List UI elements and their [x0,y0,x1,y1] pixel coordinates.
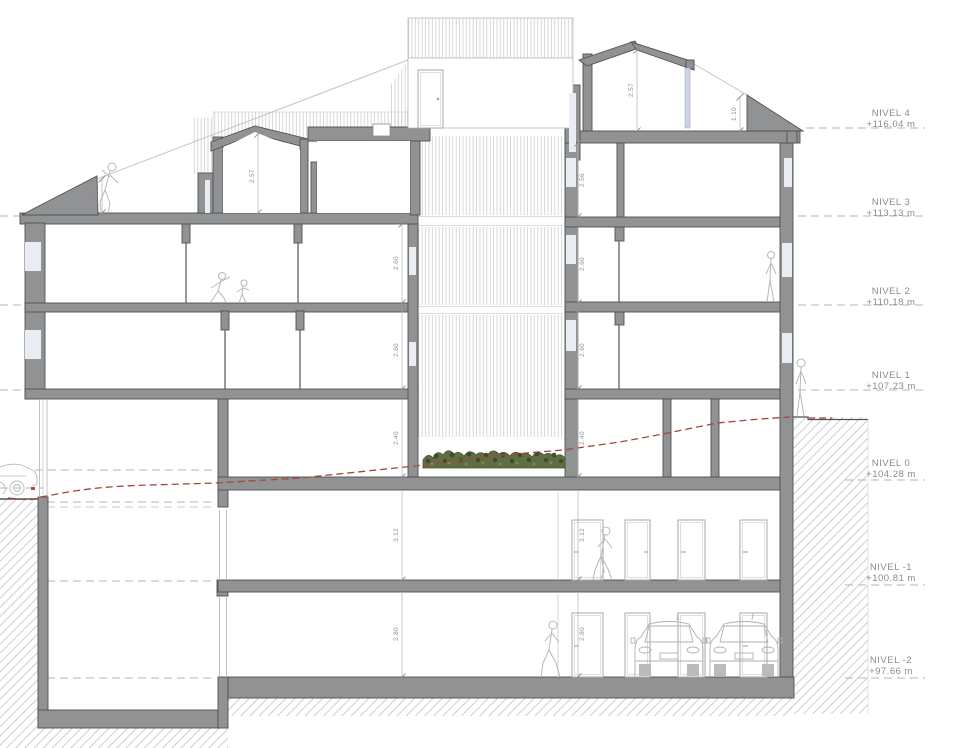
door-b1-2 [625,520,650,580]
left-basement-slab [38,710,218,728]
person-icon-outside [796,359,806,416]
level-elevation: +104.28 m [866,469,916,480]
level0-partition-1 [663,399,671,477]
left-basement-wall [38,497,48,728]
roof-room-glazing [685,68,690,128]
level-label-nivel2: NIVEL 2 +110.18 m [867,286,916,308]
attic-room1-interior [223,132,300,213]
level-name: NIVEL 2 [872,286,911,297]
partition-stub [296,311,304,330]
level-elevation: +100.81 m [866,573,916,584]
slab-nivel1-left [25,389,418,399]
slab-nivel1-right [565,389,792,399]
person-icon-level2 [766,252,776,303]
level-elevation: +116.04 m [867,119,916,130]
slab-nivel4 [565,131,800,143]
partition-stub [182,224,190,243]
partition-stub [294,224,302,243]
person-icon-terrace [100,163,118,213]
attic-room2-interior [317,141,410,213]
level-elevation: +113.13 m [867,208,916,219]
left-wall-window-l2 [25,330,41,359]
parapet-window-tower [569,93,576,152]
dimension-label: 2.57 [628,83,635,97]
car-light [31,487,35,490]
courtyard-wall-hatch-2 [418,227,563,305]
slab-nivel2-right [565,302,792,312]
opening-jamb-lines [40,399,559,677]
dimension-label: 3.12 [579,528,586,542]
ground-hatch-under-main-slab [228,698,792,716]
level-elevation: +110.18 m [867,297,916,308]
slab-nivel3-right [565,217,792,227]
tower-partition-l3 [617,143,624,217]
dimension-label: 2.56 [579,173,586,187]
tower-right-window-l3 [784,158,792,187]
foundation-slab-main [228,677,794,698]
tower-right-wall [780,143,793,677]
courtyard-wall-hatch-1 [418,136,563,215]
slab-nivel0 [218,477,792,490]
architectural-section-drawing: 2.60 2.60 2.40 3.12 2.80 2.56 2.60 2.60 … [0,0,977,748]
person-icon-dancer [237,280,249,303]
roof-room-eave-block [686,60,694,69]
terrace-side-hatch [192,118,213,174]
tower-right-window-l2 [782,243,792,277]
tower-left-window-l1 [566,320,576,351]
level-label-nivel4: NIVEL 4 +116.04 m [867,108,916,130]
courtyard-wall-window-1 [409,247,416,275]
attic-room1-right-wall [300,139,308,213]
courtyard-wall-window-2 [409,342,416,366]
dimension-label: 2.57 [249,169,256,183]
person-icon-dancer [210,273,230,304]
dimension-label: 3.12 [393,528,400,542]
mid-wall-level0 [218,399,228,507]
parapet-window [205,180,210,213]
level-elevation: +97.66 m [869,666,913,677]
sloped-roof-wedge [22,176,98,215]
door-b1-1 [572,520,603,580]
level-name: NIVEL 1 [872,370,911,381]
level-name: NIVEL 3 [872,197,911,208]
level-label-nivel-1: NIVEL -1 +100.81 m [866,562,916,584]
door-b1-4 [740,520,767,580]
right-roof-wedge [747,95,803,131]
level-labels: NIVEL 4 +116.04 m NIVEL 3 +113.13 m NIVE… [866,108,916,677]
foundation-step [218,677,228,728]
tower-right-window-l1 [782,333,792,363]
attic-room2-left-wall [311,162,317,213]
partition-stub [615,227,624,241]
dimension-label: 1.10 [731,107,738,121]
dimension-label: 2.80 [393,627,400,641]
person-icon-basement2 [541,621,560,677]
ground-hatch-under-left-slab [38,728,228,748]
left-wall-window-l3 [25,242,41,271]
door-b1-3 [678,520,705,580]
level-name: NIVEL -1 [870,562,912,573]
penthouse-door [418,70,443,128]
attic-room2-right-wall [410,141,420,215]
dimension-label: 2.40 [579,431,586,445]
roof-skylight [373,124,390,136]
partition-stub [615,311,624,325]
level-name: NIVEL -2 [870,655,912,666]
dimension-label: 2.60 [579,257,586,271]
level-name: NIVEL 4 [872,108,911,119]
ground-hatch-left [0,499,38,748]
section-svg: 2.60 2.60 2.40 3.12 2.80 2.56 2.60 2.60 … [0,0,977,748]
level-name: NIVEL 0 [872,458,911,469]
level0-partition-2 [711,399,719,477]
level-label-nivel0: NIVEL 0 +104.28 m [866,458,916,480]
level-elevation: +107.23 m [866,381,916,392]
tower-left-window-l3 [566,158,576,187]
dimension-label: 2.60 [393,256,400,270]
ground-hatch-right [790,417,868,714]
vegetation [423,451,565,468]
level-label-nivel1: NIVEL 1 +107.23 m [866,370,916,392]
door-b2-1 [572,613,603,677]
tower-right-wall-top [787,131,797,143]
slab-basement1 [218,580,788,592]
rooftop-penthouse-hatch [408,18,573,58]
roof-room-roof-left [579,41,639,66]
partition-stub [221,311,229,330]
tower-left-window-l2 [566,235,576,264]
dimension-label: 2.80 [579,627,586,641]
dimension-label: 1.10 [93,190,100,204]
dimension-label: 2.40 [393,431,400,445]
level-label-nivel-2: NIVEL -2 +97.66 m [869,655,913,677]
attic-room2-roof [308,127,430,141]
courtyard-wall-hatch-3 [418,315,563,437]
roof-room-roof-right [631,42,694,70]
level-label-nivel3: NIVEL 3 +113.13 m [867,197,916,219]
street-car-icon [0,464,37,495]
dimension-label: 2.60 [393,343,400,357]
dimension-label: 2.60 [579,343,586,357]
